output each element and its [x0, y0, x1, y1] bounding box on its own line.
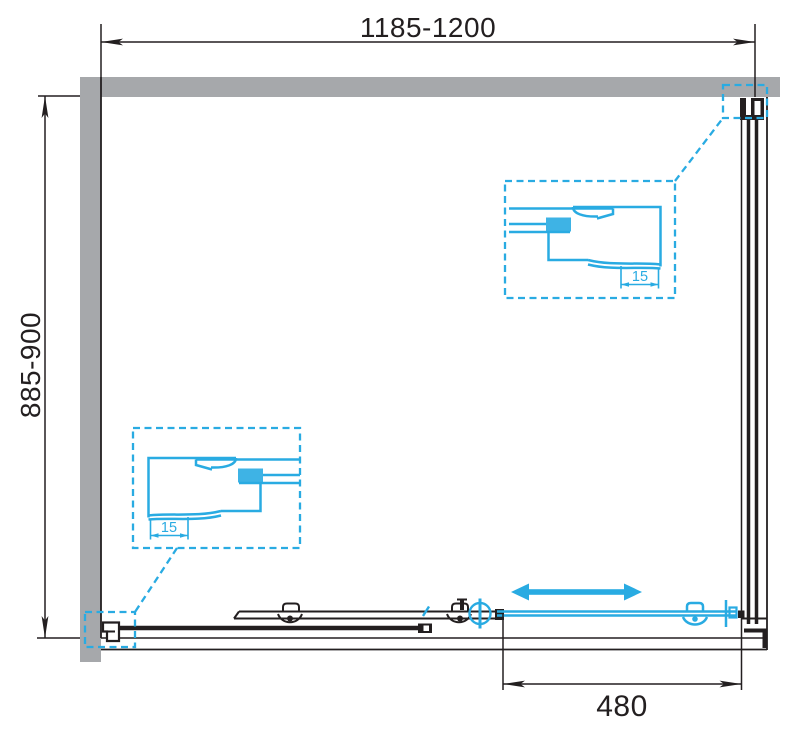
plan-view-svg: 15 15 1185-1200 885-900 480	[0, 0, 800, 732]
right-fixed-panel	[740, 97, 767, 690]
door-travel-dimension-label: 480	[596, 690, 648, 723]
bottom-track	[101, 623, 767, 650]
depth-dimension-label: 885-900	[15, 312, 46, 418]
detail-box-top-right	[505, 181, 675, 298]
detail-dim-top-right: 15	[632, 269, 648, 285]
wall-left	[80, 77, 101, 662]
corner-profile-top-right	[740, 98, 764, 120]
leader-top-right	[675, 118, 723, 181]
detail-dim-bottom-left: 15	[161, 520, 177, 536]
leader-bottom-left	[135, 548, 177, 612]
sliding-door-black	[234, 599, 504, 629]
detail-box-bottom-left	[133, 428, 300, 548]
technical-drawing: 15 15 1185-1200 885-900 480	[0, 0, 800, 732]
dimension-door-travel: 480	[503, 613, 742, 723]
slide-direction-arrow	[511, 584, 642, 601]
dimension-depth: 885-900	[15, 96, 80, 638]
detail-callouts	[85, 85, 767, 647]
door-roller-1	[278, 604, 302, 623]
wall-top	[80, 77, 780, 97]
sliding-door-blue	[497, 600, 745, 627]
door-left-end	[234, 612, 239, 619]
width-dimension-label: 1185-1200	[360, 12, 496, 43]
blue-door-roller	[683, 603, 707, 625]
corner-bracket-bottom-right	[742, 619, 768, 649]
walls	[80, 77, 780, 662]
